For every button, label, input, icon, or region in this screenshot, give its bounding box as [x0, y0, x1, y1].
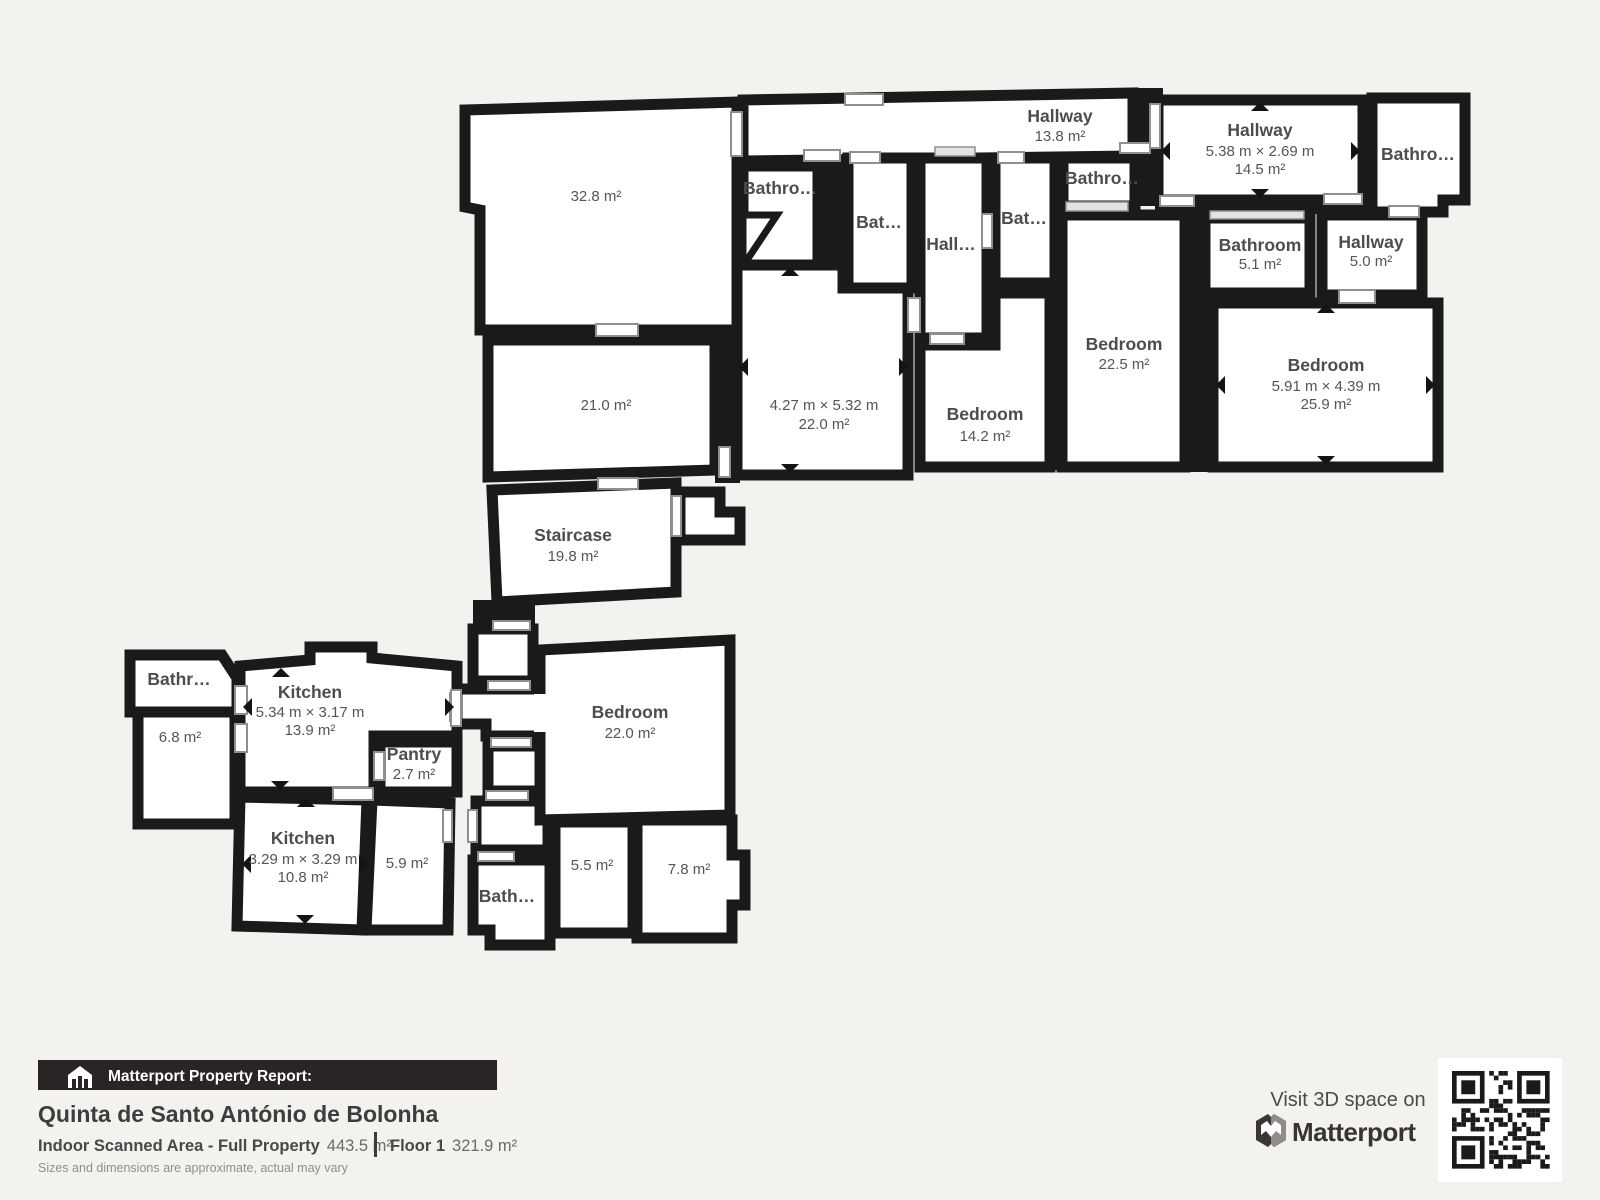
room-area: 22.5 m² — [1099, 356, 1150, 373]
room-32-8-shape — [465, 102, 737, 330]
matterport-wordmark: Matterport — [1292, 1117, 1416, 1147]
floor-label: Floor 1 — [390, 1137, 445, 1155]
floor-line: Floor 1321.9 m² — [390, 1137, 518, 1155]
room-area: 22.0 m² — [799, 416, 850, 433]
room-area: 5.5 m² — [571, 857, 614, 874]
room-area: 14.5 m² — [1235, 161, 1286, 178]
room-dims: 3.29 m × 3.29 m — [249, 851, 358, 868]
room-label: Bathro… — [743, 178, 817, 198]
divider — [374, 1132, 377, 1157]
room-label: Staircase — [534, 525, 612, 545]
wall-segment — [820, 152, 846, 270]
room-label: Pantry — [387, 744, 442, 764]
room-area: 14.2 m² — [960, 428, 1011, 445]
disclaimer-text: Sizes and dimensions are approximate, ac… — [38, 1161, 349, 1175]
room-label: Bathro… — [1381, 144, 1455, 164]
room-area: 5.1 m² — [1239, 256, 1282, 273]
room-area: 19.8 m² — [548, 548, 599, 565]
matterport-logo-icon — [1256, 1114, 1286, 1147]
room-7-8-shape — [637, 820, 745, 938]
qr-code — [1438, 1058, 1562, 1182]
room-label: Hall… — [926, 234, 976, 254]
room-label: Kitchen — [278, 682, 342, 702]
room-label: Hallway — [1227, 120, 1292, 140]
room-area: 22.0 m² — [605, 725, 656, 742]
room-dims: 5.91 m × 4.39 m — [1272, 378, 1381, 395]
room-area: 21.0 m² — [581, 397, 632, 414]
room-area: 7.8 m² — [668, 861, 711, 878]
room-dims: 5.34 m × 3.17 m — [256, 704, 365, 721]
room-label: Hallway — [1338, 232, 1403, 252]
room-label: Hallway — [1027, 106, 1092, 126]
room-area: 6.8 m² — [159, 729, 202, 746]
room-5-5-shape — [555, 822, 633, 933]
room-label: Kitchen — [271, 828, 335, 848]
room-area: 2.7 m² — [393, 766, 436, 783]
room-label: Bathroom — [1219, 235, 1302, 255]
floor-plan-page: Hallway 13.8 m² Bathro… Bat… Hall… Bat… … — [0, 0, 1600, 1200]
room-area: 25.9 m² — [1301, 396, 1352, 413]
scanned-area-value: 443.5 m² — [327, 1137, 393, 1155]
room-label: Bath… — [479, 886, 535, 906]
scanned-area-label: Indoor Scanned Area - Full Property — [38, 1137, 321, 1155]
room-label: Bathr… — [147, 669, 210, 689]
room-dims: 4.27 m × 5.32 m — [770, 397, 879, 414]
room-vestibule-1 — [473, 629, 533, 681]
room-label: Bat… — [1001, 208, 1047, 228]
visit-3d-label: Visit 3D space on — [1270, 1089, 1425, 1111]
room-22-0-upper-shape — [737, 265, 908, 475]
room-corridor — [455, 689, 545, 736]
room-label: Bedroom — [1288, 355, 1365, 375]
scanned-area-line: Indoor Scanned Area - Full Property443.5… — [38, 1137, 392, 1155]
room-area: 13.8 m² — [1035, 128, 1086, 145]
property-name: Quinta de Santo António de Bolonha — [38, 1101, 439, 1127]
room-area: 5.0 m² — [1350, 253, 1393, 270]
room-area: 13.9 m² — [285, 722, 336, 739]
room-area: 32.8 m² — [571, 188, 622, 205]
room-label: Bathro… — [1065, 168, 1139, 188]
room-area: 5.9 m² — [386, 855, 429, 872]
room-label: Bat… — [856, 212, 902, 232]
room-label: Bedroom — [947, 404, 1024, 424]
room-label: Bedroom — [592, 702, 669, 722]
report-bar-label: Matterport Property Report: — [108, 1068, 312, 1085]
room-dims: 5.38 m × 2.69 m — [1206, 143, 1315, 160]
floor-value: 321.9 m² — [452, 1137, 518, 1155]
wall-opening — [534, 694, 548, 732]
room-label: Bedroom — [1086, 334, 1163, 354]
room-area: 10.8 m² — [278, 869, 329, 886]
